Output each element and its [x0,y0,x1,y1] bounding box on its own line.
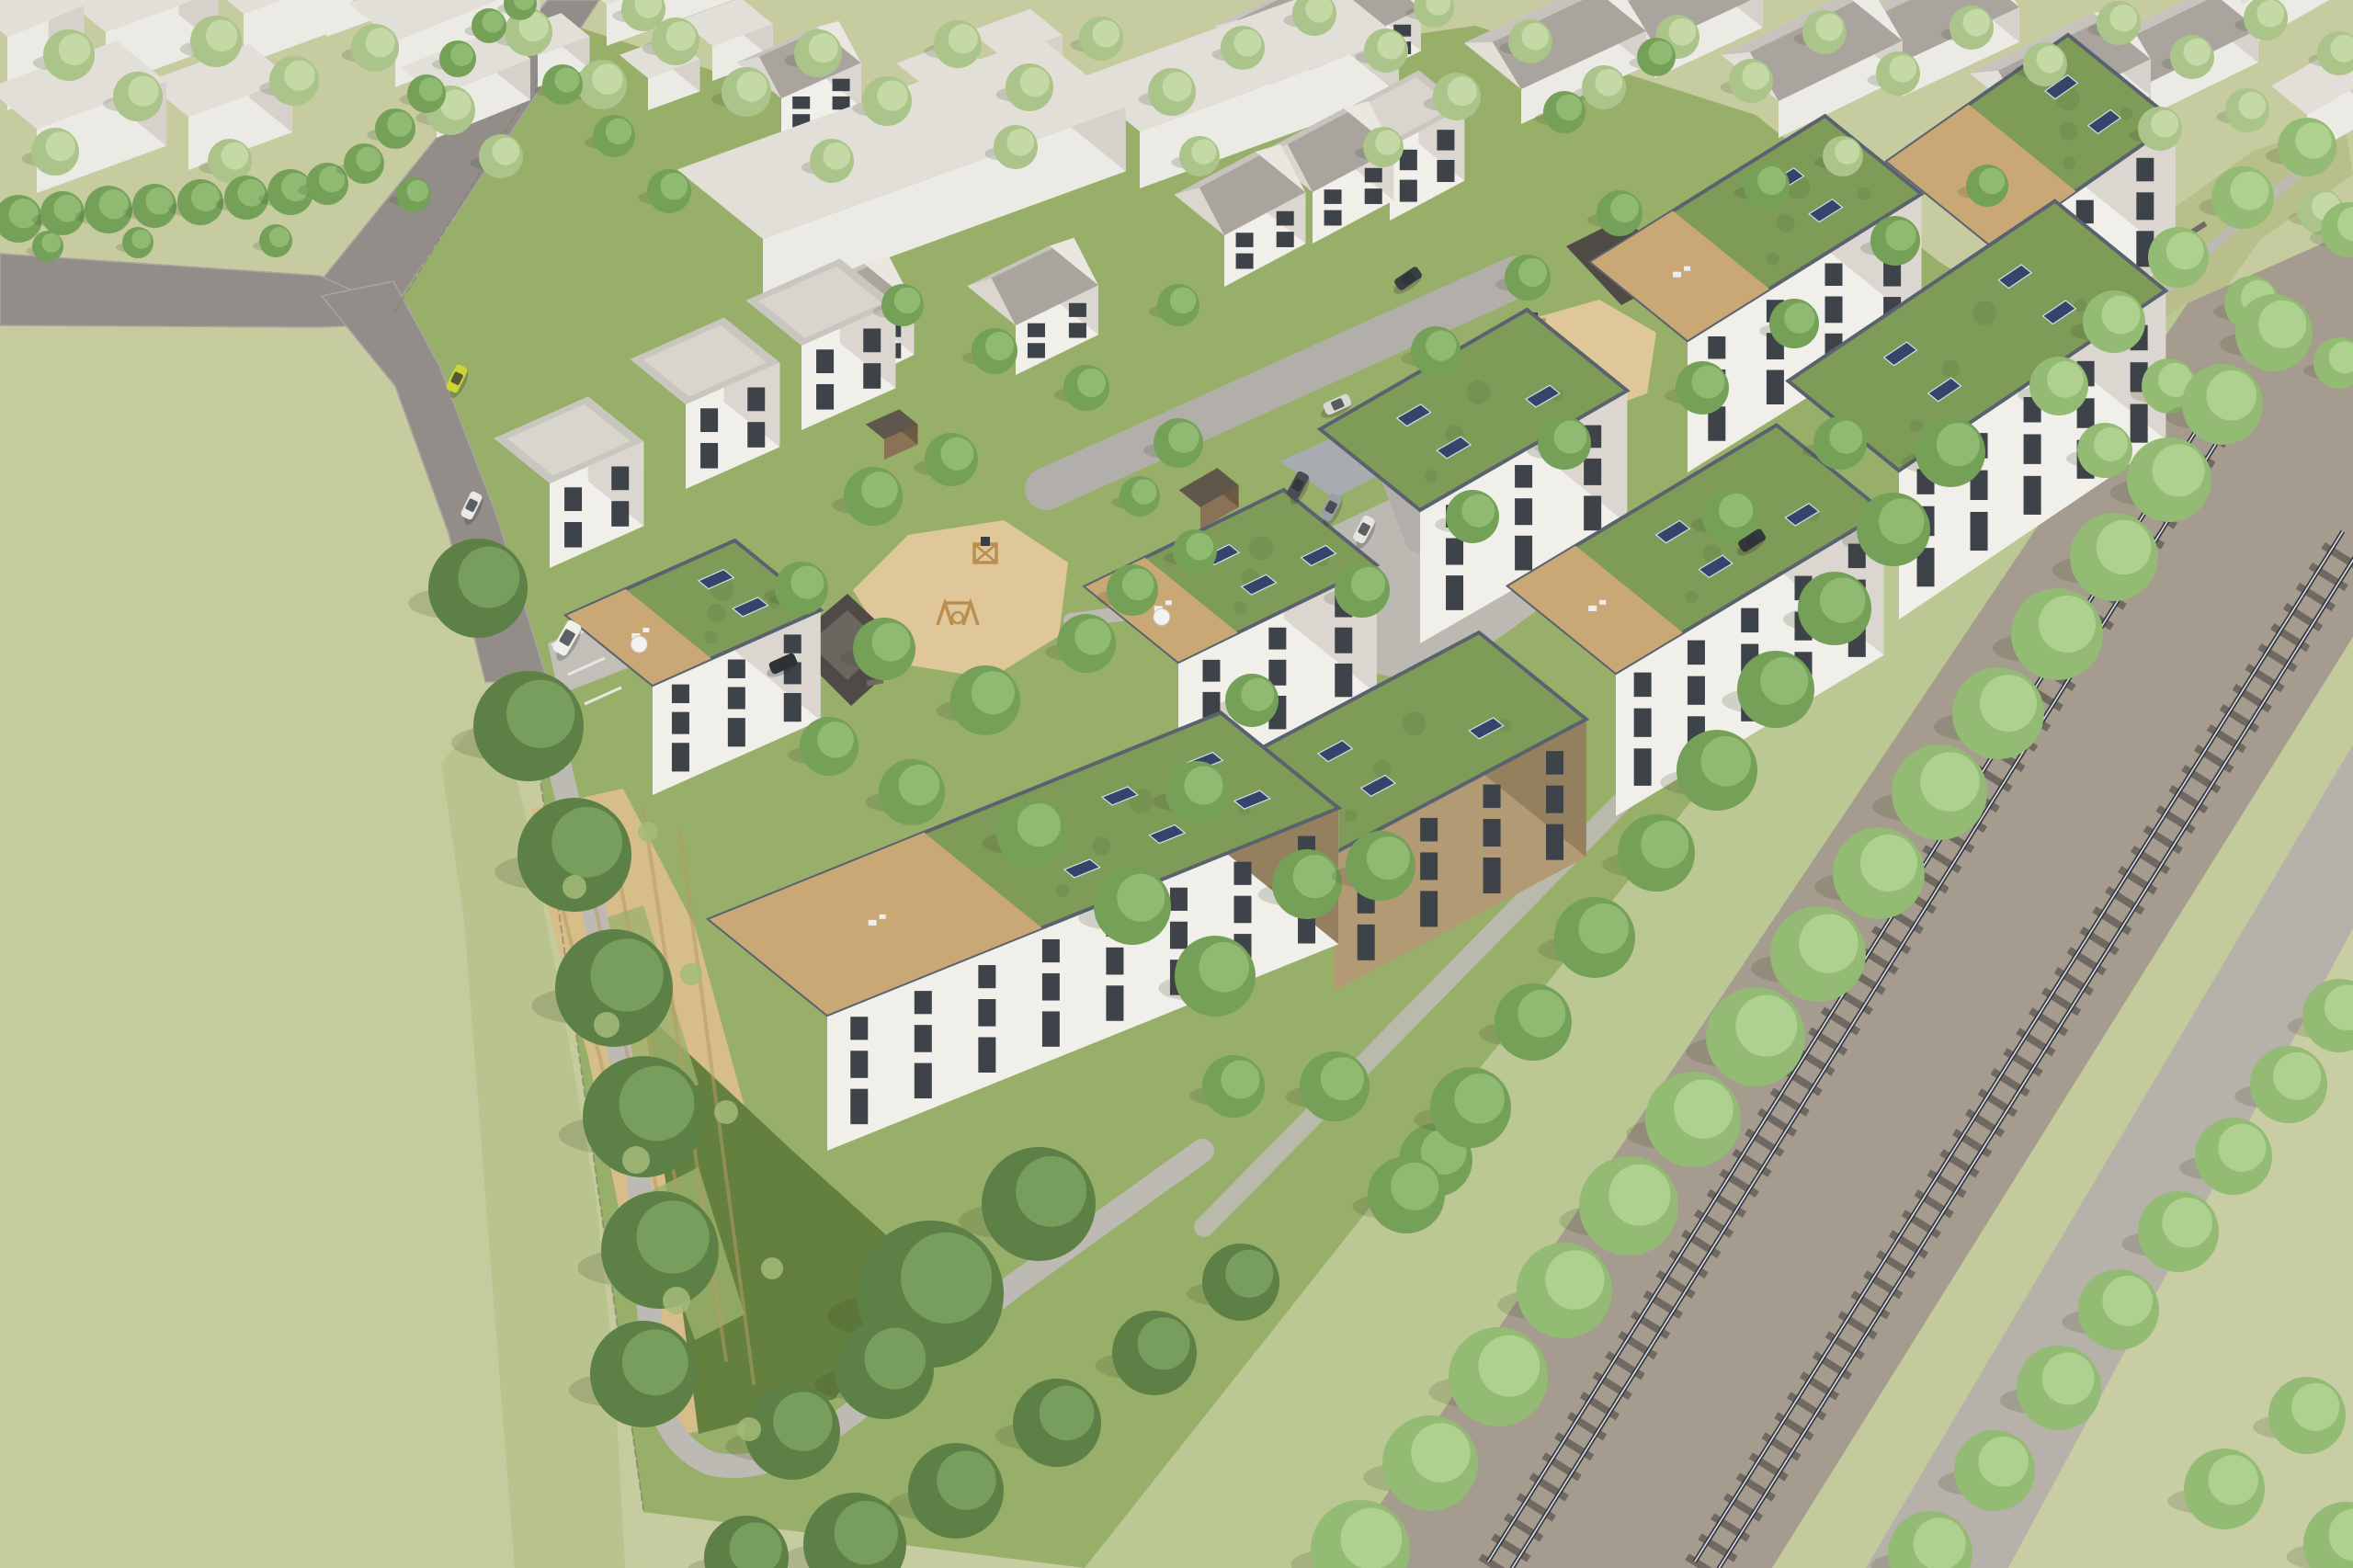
tree-canopy-highlight [1186,533,1213,561]
tree-canopy-highlight [636,1200,709,1273]
window [1584,459,1601,485]
tree-canopy-highlight [985,332,1014,360]
window [1584,495,1601,530]
tree-canopy-highlight [2238,92,2266,119]
window [611,501,629,527]
window [1437,160,1454,182]
tree-canopy-highlight [366,28,395,57]
aerial-rendering-stage [0,0,2353,1568]
tree-canopy-highlight [1553,421,1586,454]
tree-canopy-highlight [1700,736,1751,787]
window [1365,188,1382,204]
tree-canopy-highlight [1545,1250,1604,1309]
green-roof-texture [1466,381,1490,404]
tree-canopy-highlight [2291,1383,2339,1431]
tree-canopy-highlight [1518,990,1565,1038]
window [816,349,834,373]
terrace-furniture [880,915,886,919]
tree-canopy-highlight [2230,171,2268,210]
sapling-tree [594,1012,620,1038]
tree-canopy-highlight [606,119,632,145]
window [1277,211,1294,226]
tree-canopy-highlight [1241,678,1274,711]
tree-canopy-highlight [940,437,973,471]
window [672,743,689,771]
parasol [631,636,647,653]
window [1202,660,1220,682]
window [1170,888,1188,911]
tree-canopy-highlight [2258,301,2306,348]
window [728,660,745,678]
tree-canopy-highlight [59,33,91,65]
window [1236,233,1254,247]
tree-canopy-highlight [221,142,248,170]
window [1420,891,1438,926]
window [1446,575,1463,610]
window [1634,709,1652,737]
green-roof-texture [2120,108,2132,120]
tree-canopy-highlight [1760,657,1808,705]
tree-canopy-highlight [864,1328,926,1390]
tree-canopy-highlight [1518,258,1547,287]
tree-canopy-highlight [790,566,824,599]
window [2131,404,2148,443]
sapling-tree [680,963,702,985]
window [728,687,745,710]
sapling-tree [638,822,658,842]
tree-canopy-highlight [9,199,39,228]
tree-canopy-highlight [1131,480,1156,505]
window [1324,210,1342,226]
window [1708,336,1725,358]
window [1234,896,1252,924]
tree-canopy-highlight [622,1329,688,1395]
window [1106,985,1123,1020]
tree-canopy-highlight [1668,18,1696,46]
window [915,991,932,1014]
green-roof-texture [1973,301,1997,324]
tree-canopy-highlight [191,183,220,211]
green-roof-texture [2060,122,2078,141]
tree-canopy-highlight [2042,1352,2095,1404]
tree-canopy-highlight [2162,1198,2212,1248]
window [850,1017,868,1040]
window [1268,628,1286,650]
window [1634,673,1652,698]
tree-canopy-highlight [206,19,238,51]
tree-canopy-highlight [269,227,290,247]
tree-canopy-highlight [1784,302,1814,333]
window [1446,539,1463,565]
tree-canopy-highlight [871,622,910,661]
tree-canopy-highlight [1937,423,1980,466]
tree-canopy-highlight [877,80,907,110]
tree-canopy-highlight [823,142,850,170]
window [1365,168,1382,183]
tree-canopy-highlight [620,1066,695,1142]
tree-canopy-highlight [1375,131,1400,155]
window [1515,465,1532,488]
window [1335,628,1352,653]
parasol [1154,608,1170,625]
window [1483,858,1501,893]
tree-canopy-highlight [1454,1074,1505,1124]
window [564,487,582,511]
window [784,693,801,722]
tree-canopy-highlight [1691,366,1724,399]
green-roof-texture [1093,837,1111,856]
green-roof-texture [1344,809,1357,822]
terrace-furniture [1588,606,1597,611]
tree-canopy-highlight [450,43,473,66]
window [1358,925,1375,960]
window [915,1063,932,1098]
window [1268,660,1286,686]
tree-canopy-highlight [1184,766,1222,804]
tree-canopy-highlight [1138,1317,1190,1369]
window [1042,1011,1060,1046]
tree-canopy-highlight [1351,567,1385,601]
tree-canopy-highlight [1610,194,1639,222]
tree-canopy-highlight [1077,369,1106,397]
tree-canopy-highlight [41,233,61,253]
window [1234,862,1252,885]
tree-canopy-highlight [1020,67,1050,97]
terrace-furniture [1673,272,1681,278]
tree-canopy-highlight [1478,1335,1540,1397]
terrace-furniture [869,920,877,926]
sapling-tree [737,1417,761,1441]
green-roof-texture [1685,591,1698,604]
window [1042,973,1060,1001]
tree-canopy-highlight [835,1501,898,1564]
tree-canopy-highlight [1978,1437,2029,1487]
tree-canopy-highlight [1595,69,1622,97]
tree-canopy-highlight [1820,577,1866,623]
tree-canopy-highlight [2206,370,2256,421]
window [1688,676,1705,705]
sapling-tree [663,1287,690,1314]
tree-canopy-highlight [1122,568,1154,600]
tree-canopy-highlight [972,671,1015,714]
tree-canopy-highlight [1885,220,1915,250]
window [1420,818,1438,842]
window [1825,263,1843,285]
tree-canopy-highlight [2153,444,2205,496]
tree-canopy-highlight [99,189,129,219]
tree-canopy-highlight [736,71,767,101]
window [2024,476,2041,515]
tree-canopy-highlight [1221,1060,1259,1098]
tree-canopy-highlight [1461,494,1495,528]
green-roof-texture [1777,214,1795,233]
window [1106,948,1123,975]
tree-canopy-highlight [1092,20,1120,48]
tree-canopy-highlight [899,765,940,806]
window [1741,608,1758,633]
sapling-tree [761,1257,783,1279]
tree-canopy-highlight [1556,95,1583,121]
window [2136,192,2154,220]
tree-canopy-highlight [1117,874,1165,922]
tree-canopy-highlight [1835,140,1859,165]
window [2024,434,2041,463]
tree-canopy-highlight [1641,821,1688,869]
window [700,443,718,469]
window [1483,819,1501,846]
tree-canopy-highlight [660,173,688,200]
terrace-furniture [1684,267,1690,271]
tree-canopy-highlight [1799,914,1858,972]
tree-canopy-highlight [284,60,314,90]
tree-canopy-highlight [2039,596,2096,653]
window [1335,664,1352,697]
green-roof-texture [1373,760,1392,778]
window [1069,303,1086,317]
window [1028,343,1045,358]
window [1515,536,1532,571]
sapling-tree [622,1146,650,1174]
window [1170,922,1188,949]
climbing-frame-top [981,537,990,546]
aerial-architectural-rendering [0,0,2353,1568]
tree-canopy-highlight [901,1233,992,1324]
tree-canopy-highlight [1293,855,1336,898]
tree-canopy-highlight [46,131,75,161]
tree-canopy-highlight [506,680,574,748]
tree-canopy-highlight [1674,1079,1733,1138]
tree-canopy-highlight [1017,803,1061,846]
window [611,466,629,490]
window [1483,785,1501,809]
green-roof-texture [704,631,717,644]
tree-canopy-highlight [1980,675,2037,732]
window [863,328,881,352]
sapling-tree [563,875,586,899]
tree-canopy-highlight [2183,39,2211,66]
tree-canopy-highlight [1889,55,1916,83]
tree-canopy-highlight [2036,46,2063,74]
window [1546,751,1563,775]
window [816,384,834,410]
window [2136,158,2154,182]
window [850,1051,868,1078]
window [978,965,995,988]
tree-canopy-highlight [1962,9,1990,37]
tree-canopy-highlight [1521,23,1549,51]
tree-canopy-highlight [1608,1165,1670,1226]
tree-canopy-highlight [1426,330,1456,360]
tree-canopy-highlight [1742,62,1769,90]
window [1420,852,1438,880]
green-roof-texture [1858,187,1870,200]
tree-canopy-highlight [773,1392,832,1450]
green-roof-texture [1910,419,1923,432]
tree-canopy-highlight [2102,1276,2153,1326]
tree-canopy-highlight [1649,40,1673,64]
tree-canopy-highlight [2109,5,2137,32]
tree-canopy-highlight [2208,1455,2258,1506]
window [1324,189,1342,204]
window [1546,824,1563,860]
tree-canopy-highlight [1879,498,1925,544]
tree-canopy-highlight [2094,427,2128,461]
tree-canopy-highlight [809,33,838,62]
tree-canopy-highlight [1979,168,2006,195]
tree-canopy-highlight [937,1450,995,1509]
green-roof-texture [707,604,725,622]
window [1688,641,1705,665]
tree-canopy-highlight [492,138,519,165]
tree-canopy-highlight [1829,421,1862,454]
window [978,1037,995,1072]
tree-canopy-highlight [861,472,898,508]
tree-canopy-highlight [482,11,504,33]
tree-canopy-highlight [2273,1052,2321,1100]
tree-canopy-highlight [1757,166,1786,195]
tree-canopy-highlight [1914,1517,1966,1568]
tree-canopy-highlight [1377,32,1404,60]
window [1825,296,1843,323]
window [1028,324,1045,337]
window [863,363,881,389]
tree-canopy-highlight [949,24,978,53]
tree-canopy-highlight [1016,1156,1086,1227]
green-roof-texture [1425,470,1438,483]
window [833,79,850,91]
window [784,634,801,653]
tree-canopy-highlight [128,75,158,106]
tree-canopy-highlight [1074,619,1111,655]
tree-canopy-highlight [1163,72,1192,101]
tree-canopy-highlight [131,230,151,249]
tree-canopy-highlight [551,807,622,878]
window [1515,498,1532,525]
window [1236,254,1254,269]
tree-canopy-highlight [817,722,854,758]
tree-canopy-highlight [1578,903,1629,954]
terrace-furniture [1165,600,1172,605]
tree-canopy-highlight [419,77,443,101]
tree-canopy-highlight [1448,76,1477,106]
tree-canopy-highlight [1170,288,1197,314]
tree-canopy-highlight [592,63,622,94]
window [1546,786,1563,813]
tree-canopy-highlight [2097,520,2152,575]
window [728,718,745,746]
tree-canopy-highlight [1920,752,1979,811]
tree-canopy-highlight [554,68,579,93]
green-roof-texture [1402,711,1426,735]
tree-canopy-highlight [1860,835,1917,892]
tree-canopy-highlight [1191,140,1216,165]
tree-canopy-highlight [1040,1386,1095,1441]
window [1069,323,1086,337]
tree-canopy-highlight [1225,1250,1273,1298]
tree-canopy-highlight [2166,232,2204,269]
tree-canopy-highlight [2295,122,2332,159]
tree-canopy-highlight [2101,295,2140,334]
sapling-tree [714,1100,738,1124]
window [1042,939,1060,962]
tree-canopy-highlight [458,547,519,608]
window [850,1089,868,1124]
terrace-furniture [642,628,649,632]
tree-canopy-highlight [666,21,696,51]
tree-canopy-highlight [2151,110,2178,138]
green-roof-texture [1056,884,1069,897]
tree-canopy-highlight [2218,1124,2266,1172]
tree-canopy-highlight [356,147,381,172]
tree-canopy-highlight [1233,29,1261,57]
tree-canopy-highlight [406,180,428,202]
tree-canopy-highlight [1735,995,1797,1057]
window [747,422,765,448]
tree-canopy-highlight [590,938,663,1011]
tree-canopy-highlight [1411,1423,1470,1482]
tree-canopy-highlight [1340,1508,1402,1568]
window [564,522,582,548]
window [672,685,689,703]
tree-canopy-highlight [1006,129,1034,156]
tree-canopy-highlight [387,112,412,137]
window [1767,370,1784,404]
green-roof-texture [1233,601,1246,614]
tree-canopy-highlight [1367,836,1410,880]
green-roof-texture [2063,157,2075,170]
tree-canopy-highlight [1719,494,1753,528]
window [978,999,995,1027]
tree-canopy-highlight [2256,0,2284,28]
window [1437,130,1454,150]
window [747,387,765,411]
tree-canopy-highlight [1815,14,1843,41]
window [915,1025,932,1052]
tree-canopy-highlight [1168,422,1199,452]
window [700,408,718,432]
green-roof-texture [2074,300,2086,312]
window [1634,748,1652,786]
tree-canopy-highlight [1321,1057,1364,1100]
green-roof-texture [1767,253,1779,266]
tree-canopy-highlight [894,288,921,314]
window [1971,512,1988,551]
green-roof-texture [1941,360,1960,379]
window [1400,180,1417,202]
window [1277,232,1294,247]
tree-canopy-highlight [1391,1163,1438,1210]
tree-canopy-highlight [1199,942,1249,993]
window [672,712,689,734]
window [792,97,810,108]
terrace-furniture [1599,600,1606,605]
green-roof-texture [1249,536,1273,560]
tree-canopy-highlight [2047,361,2084,398]
